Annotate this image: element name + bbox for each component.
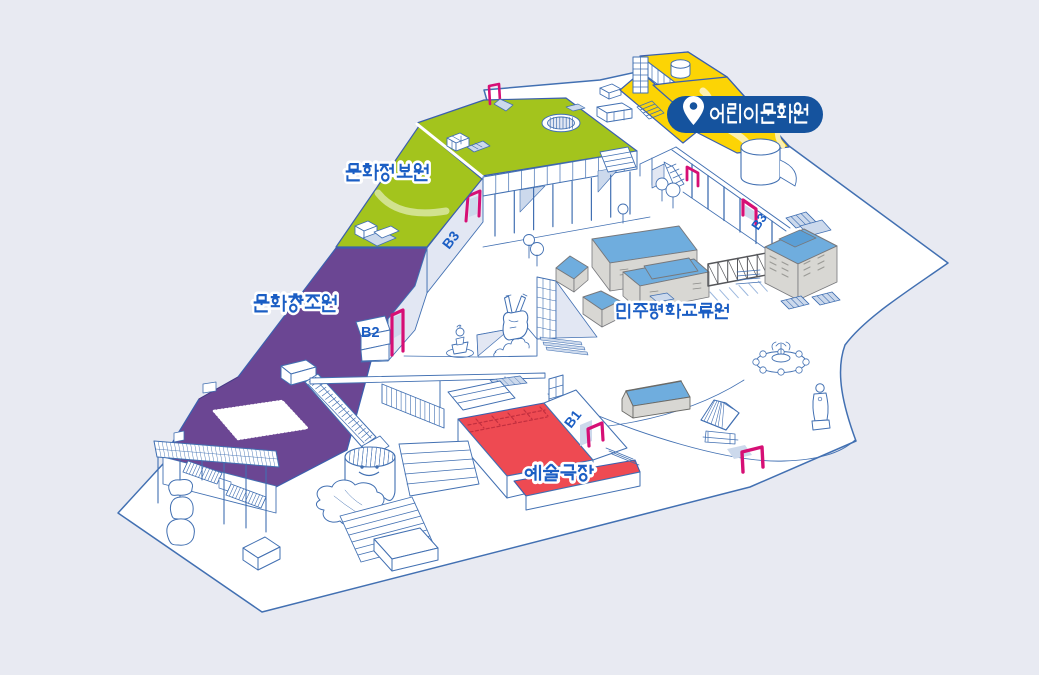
svg-text:B2: B2	[361, 325, 380, 341]
